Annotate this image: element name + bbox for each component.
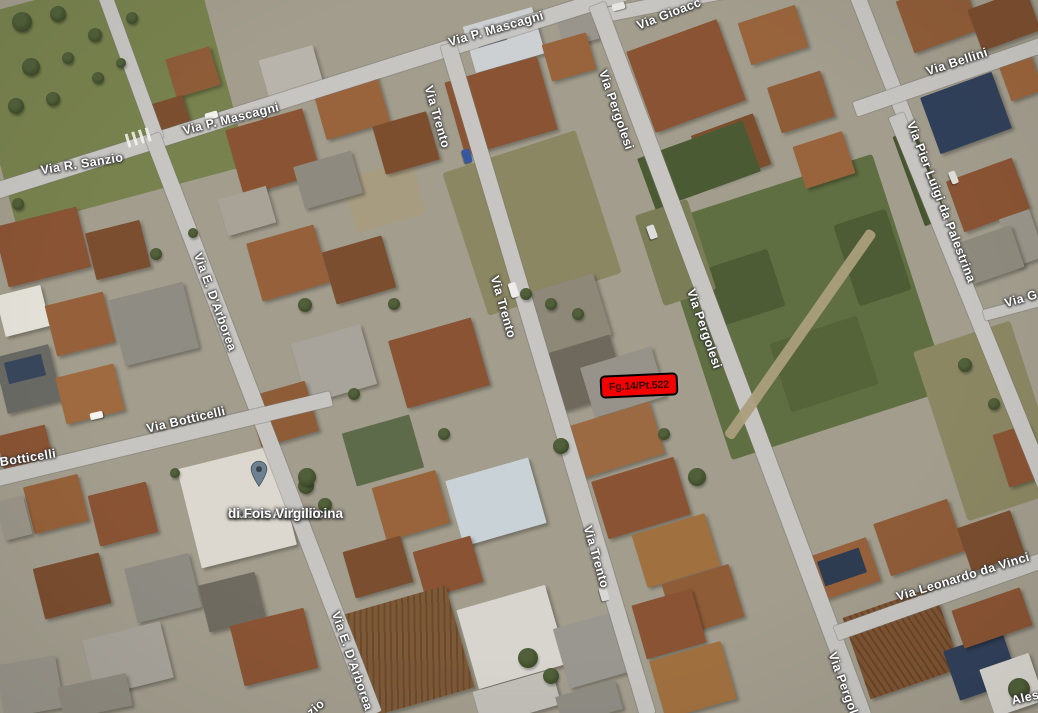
tree	[8, 98, 24, 114]
building	[0, 285, 50, 337]
street-label-partial-zio: zio	[305, 697, 327, 713]
tree	[116, 58, 126, 68]
building	[33, 553, 112, 620]
car	[89, 411, 103, 421]
greenhouse-panels	[445, 457, 546, 546]
building	[45, 292, 116, 357]
tree	[958, 358, 972, 372]
tree	[388, 298, 400, 310]
tree	[988, 398, 1000, 410]
building	[124, 553, 202, 623]
tree	[298, 298, 312, 312]
tree	[88, 28, 102, 42]
building	[767, 71, 835, 134]
tree	[62, 52, 74, 64]
tree	[50, 6, 66, 22]
tree	[46, 92, 60, 106]
building	[555, 680, 623, 713]
tree	[170, 468, 180, 478]
tree	[543, 668, 559, 684]
building	[85, 220, 151, 280]
building	[88, 482, 159, 547]
satellite-map[interactable]: Via R. Sanzio Via P. Mascagni Via P. Mas…	[0, 0, 1038, 713]
building	[388, 318, 490, 409]
tree	[438, 428, 450, 440]
building	[23, 474, 89, 534]
building	[218, 186, 277, 236]
building	[109, 282, 199, 366]
tree	[545, 298, 557, 310]
building	[413, 536, 484, 599]
tree	[92, 72, 104, 84]
tree	[12, 198, 24, 210]
tree	[520, 288, 532, 300]
tree	[298, 468, 316, 486]
tree	[518, 648, 538, 668]
parcel-marker[interactable]: Fg.14/Pt.522	[600, 372, 679, 398]
building	[246, 225, 330, 302]
tree	[150, 248, 162, 260]
building	[322, 236, 396, 305]
tree	[348, 388, 360, 400]
street-label-via-e-darborea-top: Via E. D'Arborea	[191, 251, 238, 353]
tree	[126, 12, 138, 24]
poi-name-line2: di Fois Virgilio	[228, 506, 321, 523]
building	[896, 0, 981, 53]
poi-pin-icon[interactable]	[250, 460, 268, 488]
building	[873, 499, 965, 576]
building	[57, 673, 132, 713]
tree	[553, 438, 569, 454]
tree	[688, 468, 706, 486]
building	[372, 470, 451, 541]
tree	[658, 428, 670, 440]
tree	[188, 228, 198, 238]
building	[738, 5, 809, 65]
building	[343, 536, 414, 599]
tree	[572, 308, 584, 320]
tree	[22, 58, 40, 76]
building	[0, 655, 64, 713]
tree	[12, 12, 32, 32]
building	[542, 32, 597, 81]
